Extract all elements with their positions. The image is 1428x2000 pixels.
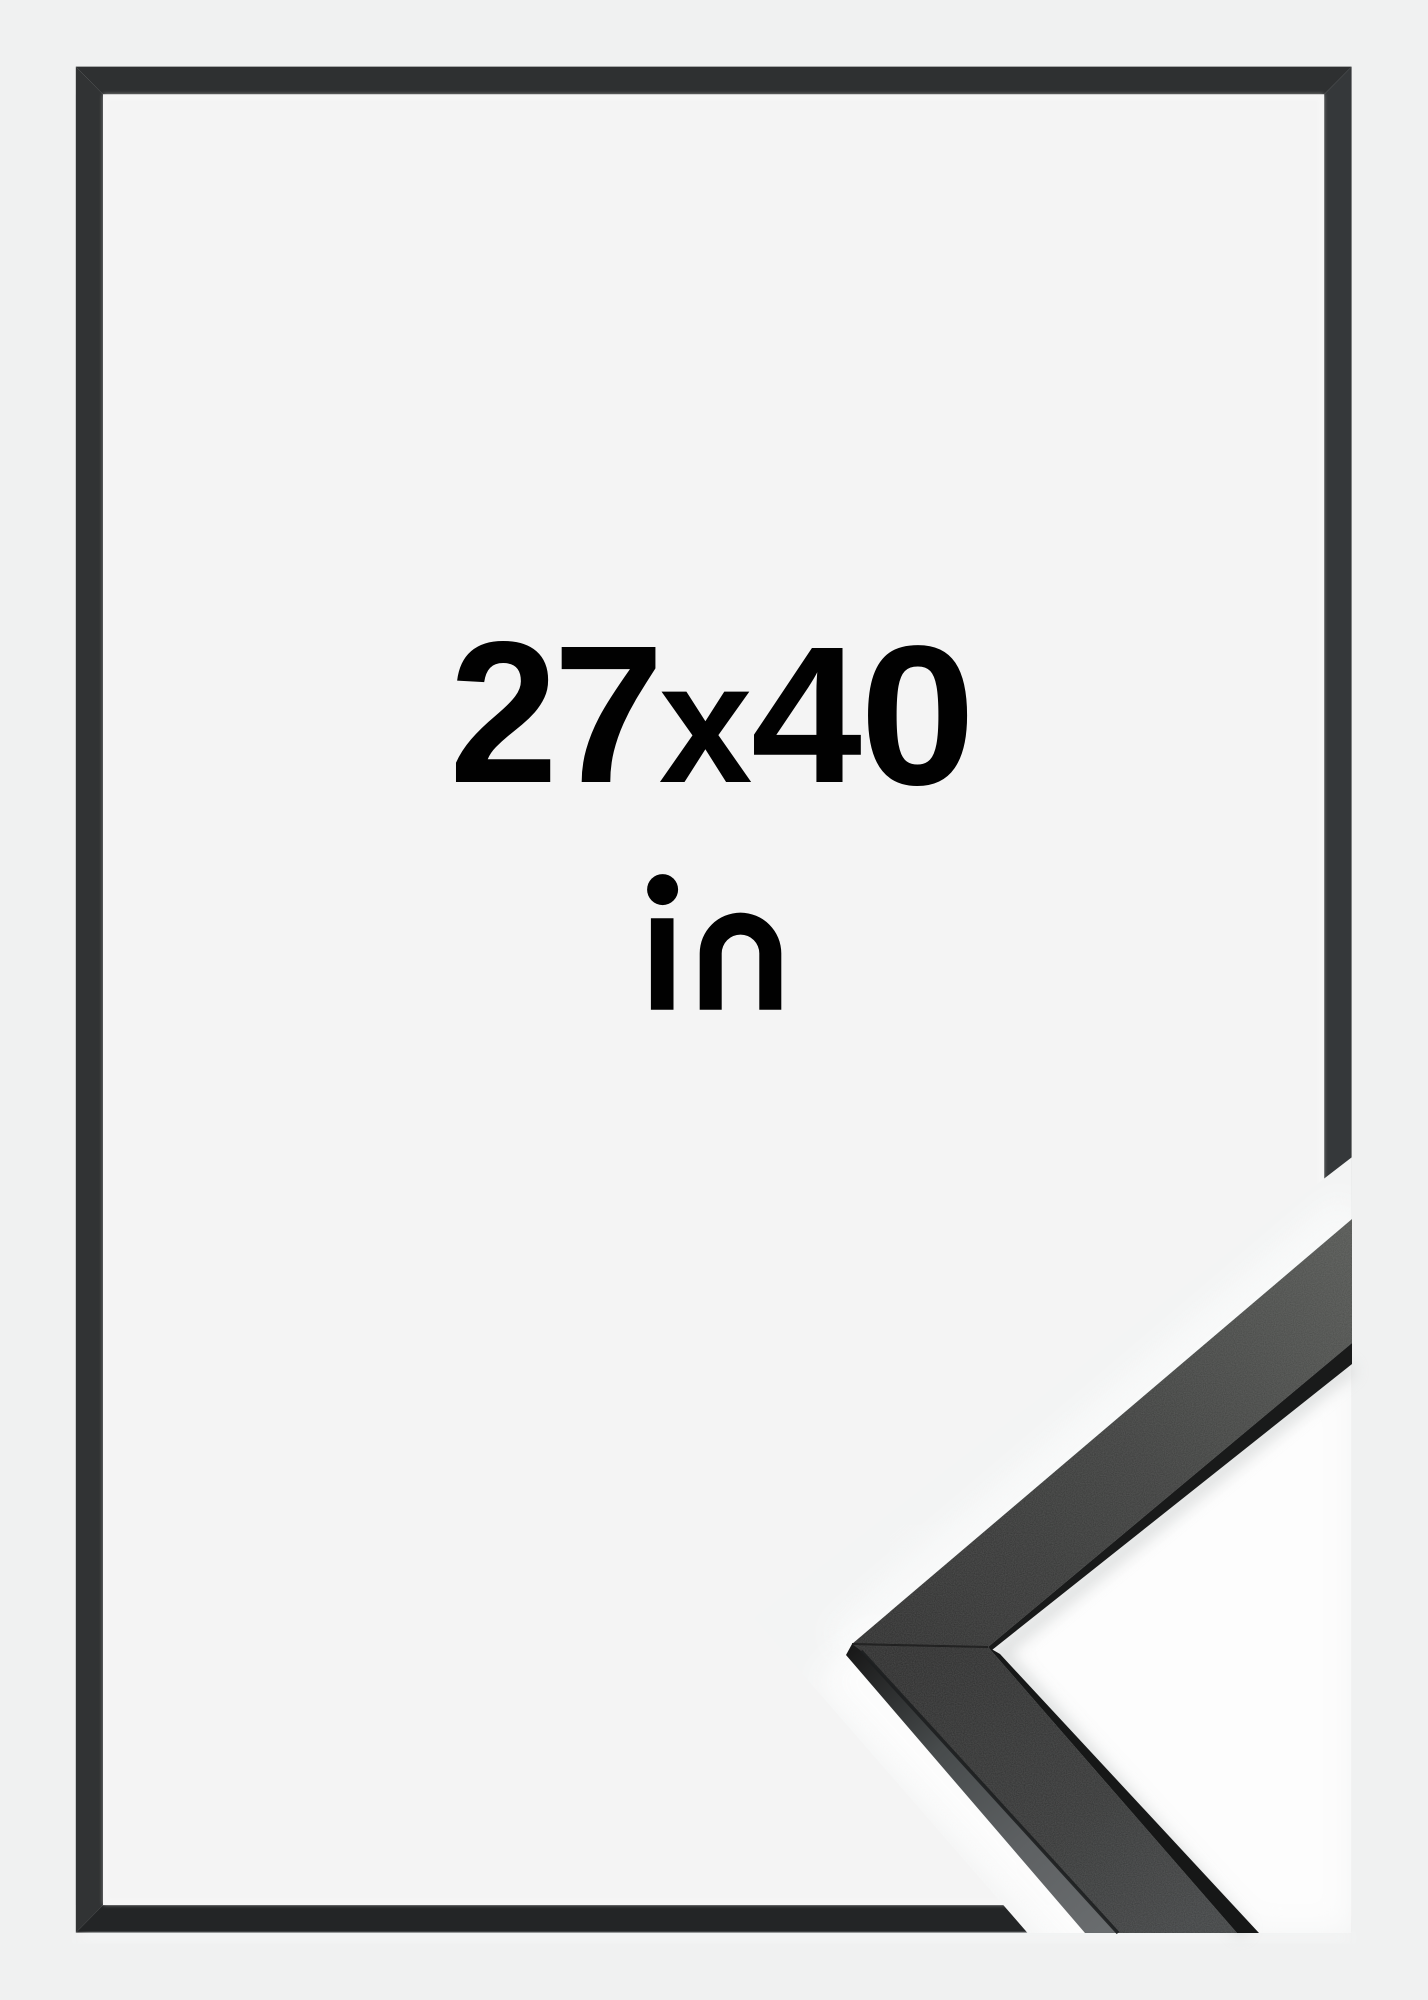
svg-text:4: 4 [751, 606, 862, 823]
svg-text:7: 7 [553, 605, 664, 824]
svg-text:x: x [659, 627, 753, 819]
svg-text:0: 0 [860, 605, 976, 827]
svg-text:2: 2 [449, 600, 558, 825]
